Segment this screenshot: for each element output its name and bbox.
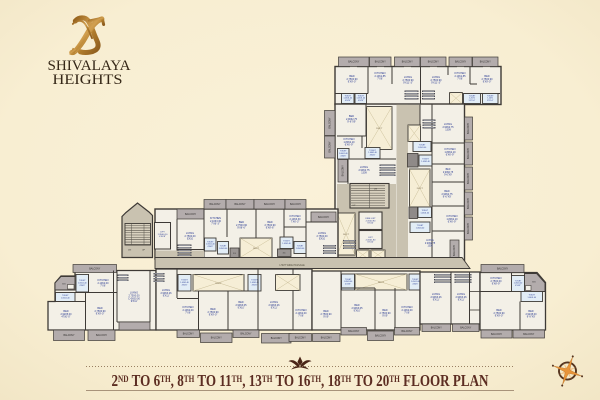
svg-text:DN: DN xyxy=(128,250,132,252)
svg-text:BALCONY: BALCONY xyxy=(428,61,439,64)
svg-text:BALCONY: BALCONY xyxy=(185,213,196,216)
svg-text:BALCONY: BALCONY xyxy=(467,123,470,134)
svg-text:1.0501.40: 1.0501.40 xyxy=(61,297,69,299)
svg-text:1.0501.40: 1.0501.40 xyxy=(418,147,426,149)
svg-text:BALCONY: BALCONY xyxy=(210,203,221,206)
svg-text:BALCONY: BALCONY xyxy=(64,334,75,337)
svg-text:1.0501.40: 1.0501.40 xyxy=(282,243,290,245)
svg-text:1.0501.40: 1.0501.40 xyxy=(296,248,304,250)
svg-text:BALCONY: BALCONY xyxy=(290,203,301,206)
svg-text:HEIGHTS: HEIGHTS xyxy=(53,72,123,88)
svg-text:DUCT: DUCT xyxy=(253,248,260,250)
svg-text:BALCONY: BALCONY xyxy=(375,335,386,338)
svg-text:DUCT: DUCT xyxy=(215,283,222,285)
svg-text:BALCONY: BALCONY xyxy=(328,141,331,152)
svg-text:BALCONY: BALCONY xyxy=(348,330,359,333)
svg-text:DUCT: DUCT xyxy=(378,282,385,284)
svg-text:BALCONY: BALCONY xyxy=(211,337,222,340)
svg-text:BALCONY: BALCONY xyxy=(467,148,470,159)
svg-text:BALCONY: BALCONY xyxy=(431,327,442,330)
svg-text:BALCONY: BALCONY xyxy=(183,333,194,336)
svg-text:1.0501.40: 1.0501.40 xyxy=(416,228,424,230)
svg-text:DUCT: DUCT xyxy=(376,128,383,130)
svg-text:BALCONY: BALCONY xyxy=(467,223,470,234)
svg-text:BALCONY: BALCONY xyxy=(491,333,502,336)
svg-text:1.0501.40: 1.0501.40 xyxy=(421,161,429,163)
svg-text:DUCT: DUCT xyxy=(343,234,350,236)
svg-text:1.5MT WIDE PASSAGE: 1.5MT WIDE PASSAGE xyxy=(279,264,305,267)
svg-text:4'X4'6": 4'X4'6" xyxy=(515,285,521,287)
svg-text:BALCONY: BALCONY xyxy=(295,336,306,339)
svg-text:4'X4'6": 4'X4'6" xyxy=(345,284,351,286)
svg-text:BALCONY: BALCONY xyxy=(348,61,359,64)
svg-text:BALCONY: BALCONY xyxy=(455,61,466,64)
svg-text:4'X4'6": 4'X4'6" xyxy=(358,100,364,102)
svg-text:4'X4'6": 4'X4'6" xyxy=(79,285,85,287)
svg-text:4'X4'6": 4'X4'6" xyxy=(182,284,188,286)
svg-text:BALCONY: BALCONY xyxy=(318,216,329,219)
svg-text:BALCONY: BALCONY xyxy=(467,198,470,209)
svg-text:BALCONY: BALCONY xyxy=(96,334,107,337)
svg-text:BALCONY: BALCONY xyxy=(264,203,275,206)
svg-text:BALCONY: BALCONY xyxy=(453,245,456,256)
svg-text:DUCT: DUCT xyxy=(417,188,424,190)
svg-text:1.0501.40: 1.0501.40 xyxy=(219,248,227,250)
svg-text:BALCONY: BALCONY xyxy=(321,336,332,339)
svg-text:BALCONY: BALCONY xyxy=(460,327,471,330)
svg-text:BALCONY: BALCONY xyxy=(375,61,386,64)
svg-text:1.0601.40: 1.0601.40 xyxy=(528,297,536,299)
svg-text:4'X4'6": 4'X4'6" xyxy=(345,100,351,102)
svg-text:BALCONY: BALCONY xyxy=(241,333,252,336)
svg-text:4'X4'6": 4'X4'6" xyxy=(412,284,418,286)
svg-text:1.0501.40: 1.0501.40 xyxy=(421,213,429,215)
svg-text:BALCONY: BALCONY xyxy=(402,330,413,333)
svg-text:5'X5'-0": 5'X5'-0" xyxy=(487,100,494,102)
svg-text:BALCONY: BALCONY xyxy=(480,61,491,64)
svg-text:4'X4'6": 4'X4'6" xyxy=(252,284,258,286)
svg-text:DN: DN xyxy=(374,189,378,191)
svg-text:BALCONY: BALCONY xyxy=(271,337,282,340)
svg-text:4'X4'6": 4'X4'6" xyxy=(207,246,213,248)
svg-text:BALCONY: BALCONY xyxy=(341,165,344,176)
svg-text:4'X4'6": 4'X4'6" xyxy=(370,155,376,157)
svg-text:BALCONY: BALCONY xyxy=(497,267,508,270)
svg-text:BALCONY: BALCONY xyxy=(89,267,100,270)
svg-text:BALCONY: BALCONY xyxy=(328,117,331,128)
svg-text:5'X5'-0": 5'X5'-0" xyxy=(469,100,476,102)
svg-text:BALCONY: BALCONY xyxy=(467,173,470,184)
svg-text:BALCONY: BALCONY xyxy=(523,333,534,336)
svg-text:4'X4'6": 4'X4'6" xyxy=(340,155,346,157)
svg-text:BALCONY: BALCONY xyxy=(402,61,413,64)
svg-text:UP: UP xyxy=(142,250,146,252)
svg-text:BALCONY: BALCONY xyxy=(235,203,246,206)
